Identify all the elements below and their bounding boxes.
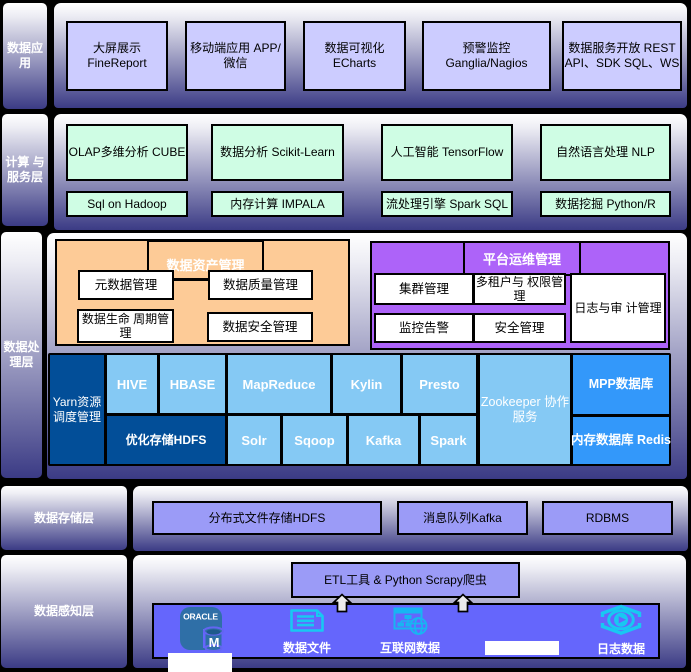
svg-text:M: M: [209, 635, 220, 650]
svg-text:ORACLE: ORACLE: [183, 612, 218, 622]
